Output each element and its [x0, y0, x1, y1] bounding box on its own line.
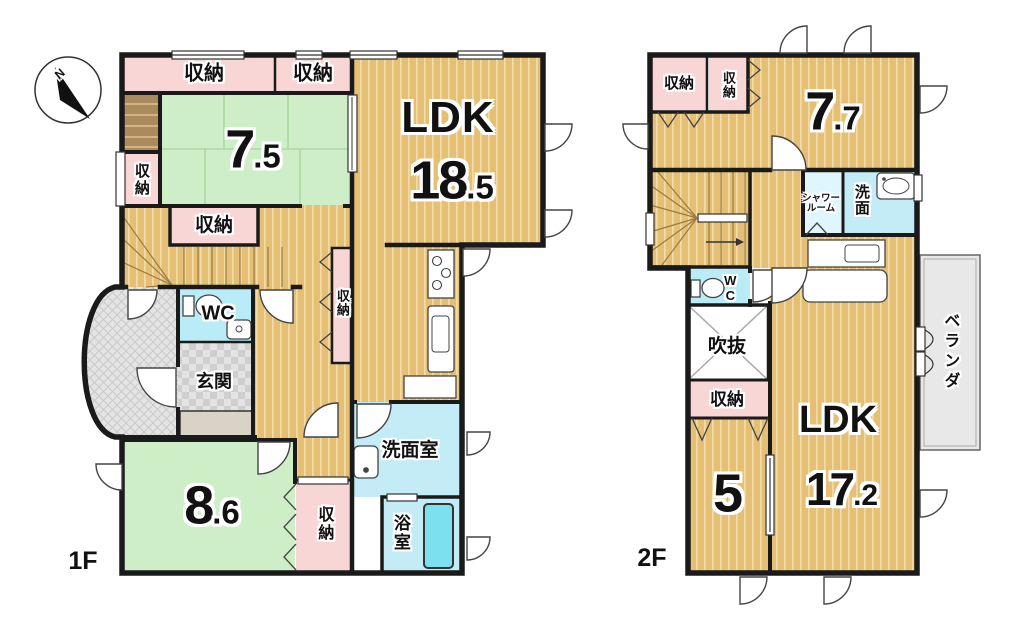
room-size-ldk-2f: 17.2 — [806, 465, 878, 513]
compass-icon — [35, 57, 101, 123]
room-label-bathroom: 浴室 — [391, 514, 409, 552]
room-size-bedroom-1f: 8.6 — [184, 478, 240, 535]
storage-label: 収納 — [315, 506, 332, 542]
storage-label: 収納 — [184, 64, 224, 85]
room-size-5: 5 — [713, 466, 741, 523]
floor-plan: N 収納 収納 7.5 収納 収納 LDK 18.5 WC 玄関 収納 洗面室 … — [0, 0, 1024, 629]
room-label-ldk-2f: LDK — [799, 401, 877, 441]
storage-label: 収納 — [710, 391, 744, 409]
room-label-ldk-1f: LDK — [401, 95, 494, 141]
room-label-washroom-2f: 洗面 — [853, 184, 869, 216]
room-label-veranda: ベランダ — [941, 312, 958, 392]
floor-plan-drawing — [0, 0, 1024, 629]
room-label-void: 吹抜 — [708, 337, 746, 357]
storage-label: 収納 — [293, 64, 333, 85]
floor1-label: 1F — [68, 548, 97, 574]
room-label-entrance: 玄関 — [196, 373, 232, 392]
room-size-77: 7.7 — [805, 84, 861, 141]
shower-line2: ルーム — [802, 204, 840, 214]
room-label-washroom-1f: 洗面室 — [381, 441, 438, 461]
floor2-label: 2F — [637, 545, 666, 571]
room-label-wc-1f: WC — [201, 304, 234, 325]
storage-label: 収納 — [133, 163, 149, 197]
room-label-shower: シャワー ルーム — [802, 194, 840, 214]
room-label-wc-2f: WC — [723, 273, 737, 303]
storage-label: 収納 — [721, 71, 735, 99]
storage-label: 収納 — [335, 289, 349, 317]
storage-label: 収納 — [195, 216, 233, 236]
room-size-tatami: 7.5 — [225, 122, 281, 179]
room-size-ldk-1f: 18.5 — [410, 153, 494, 210]
storage-label: 収納 — [664, 76, 694, 92]
